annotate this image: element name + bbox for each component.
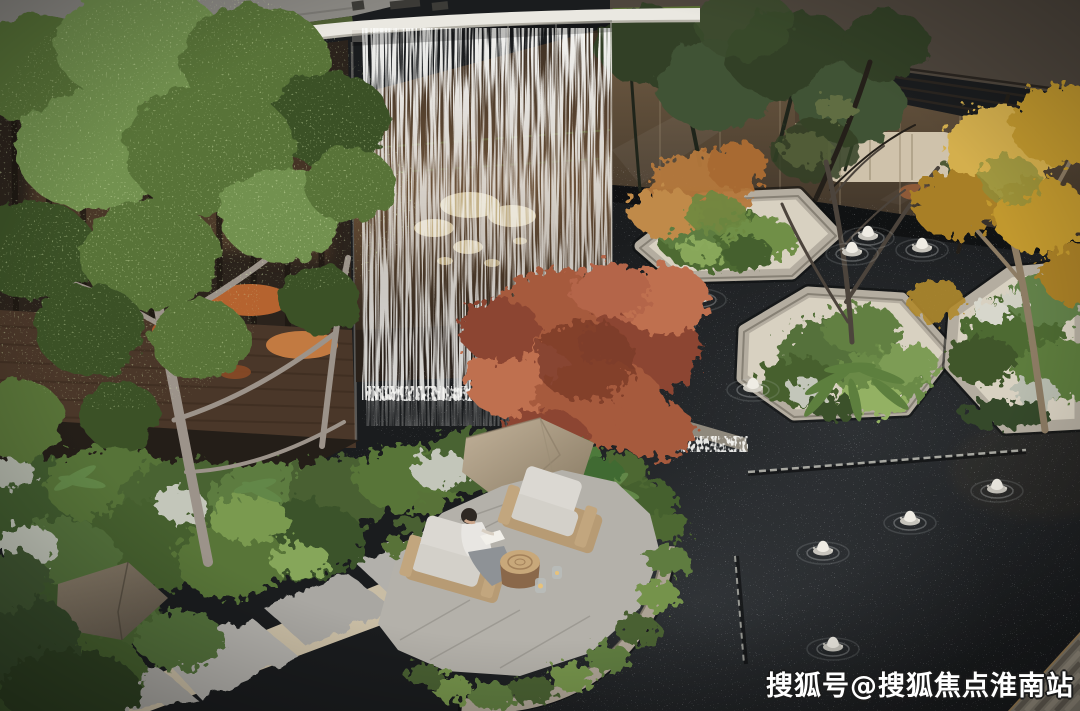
vignette: [0, 0, 1080, 711]
watermark: 搜狐号@搜狐焦点淮南站: [766, 664, 1074, 703]
scene-svg: [0, 0, 1080, 711]
rendering-canvas: 搜狐号@搜狐焦点淮南站: [0, 0, 1080, 711]
watermark-text: 搜狐号@搜狐焦点淮南站: [766, 671, 1074, 702]
